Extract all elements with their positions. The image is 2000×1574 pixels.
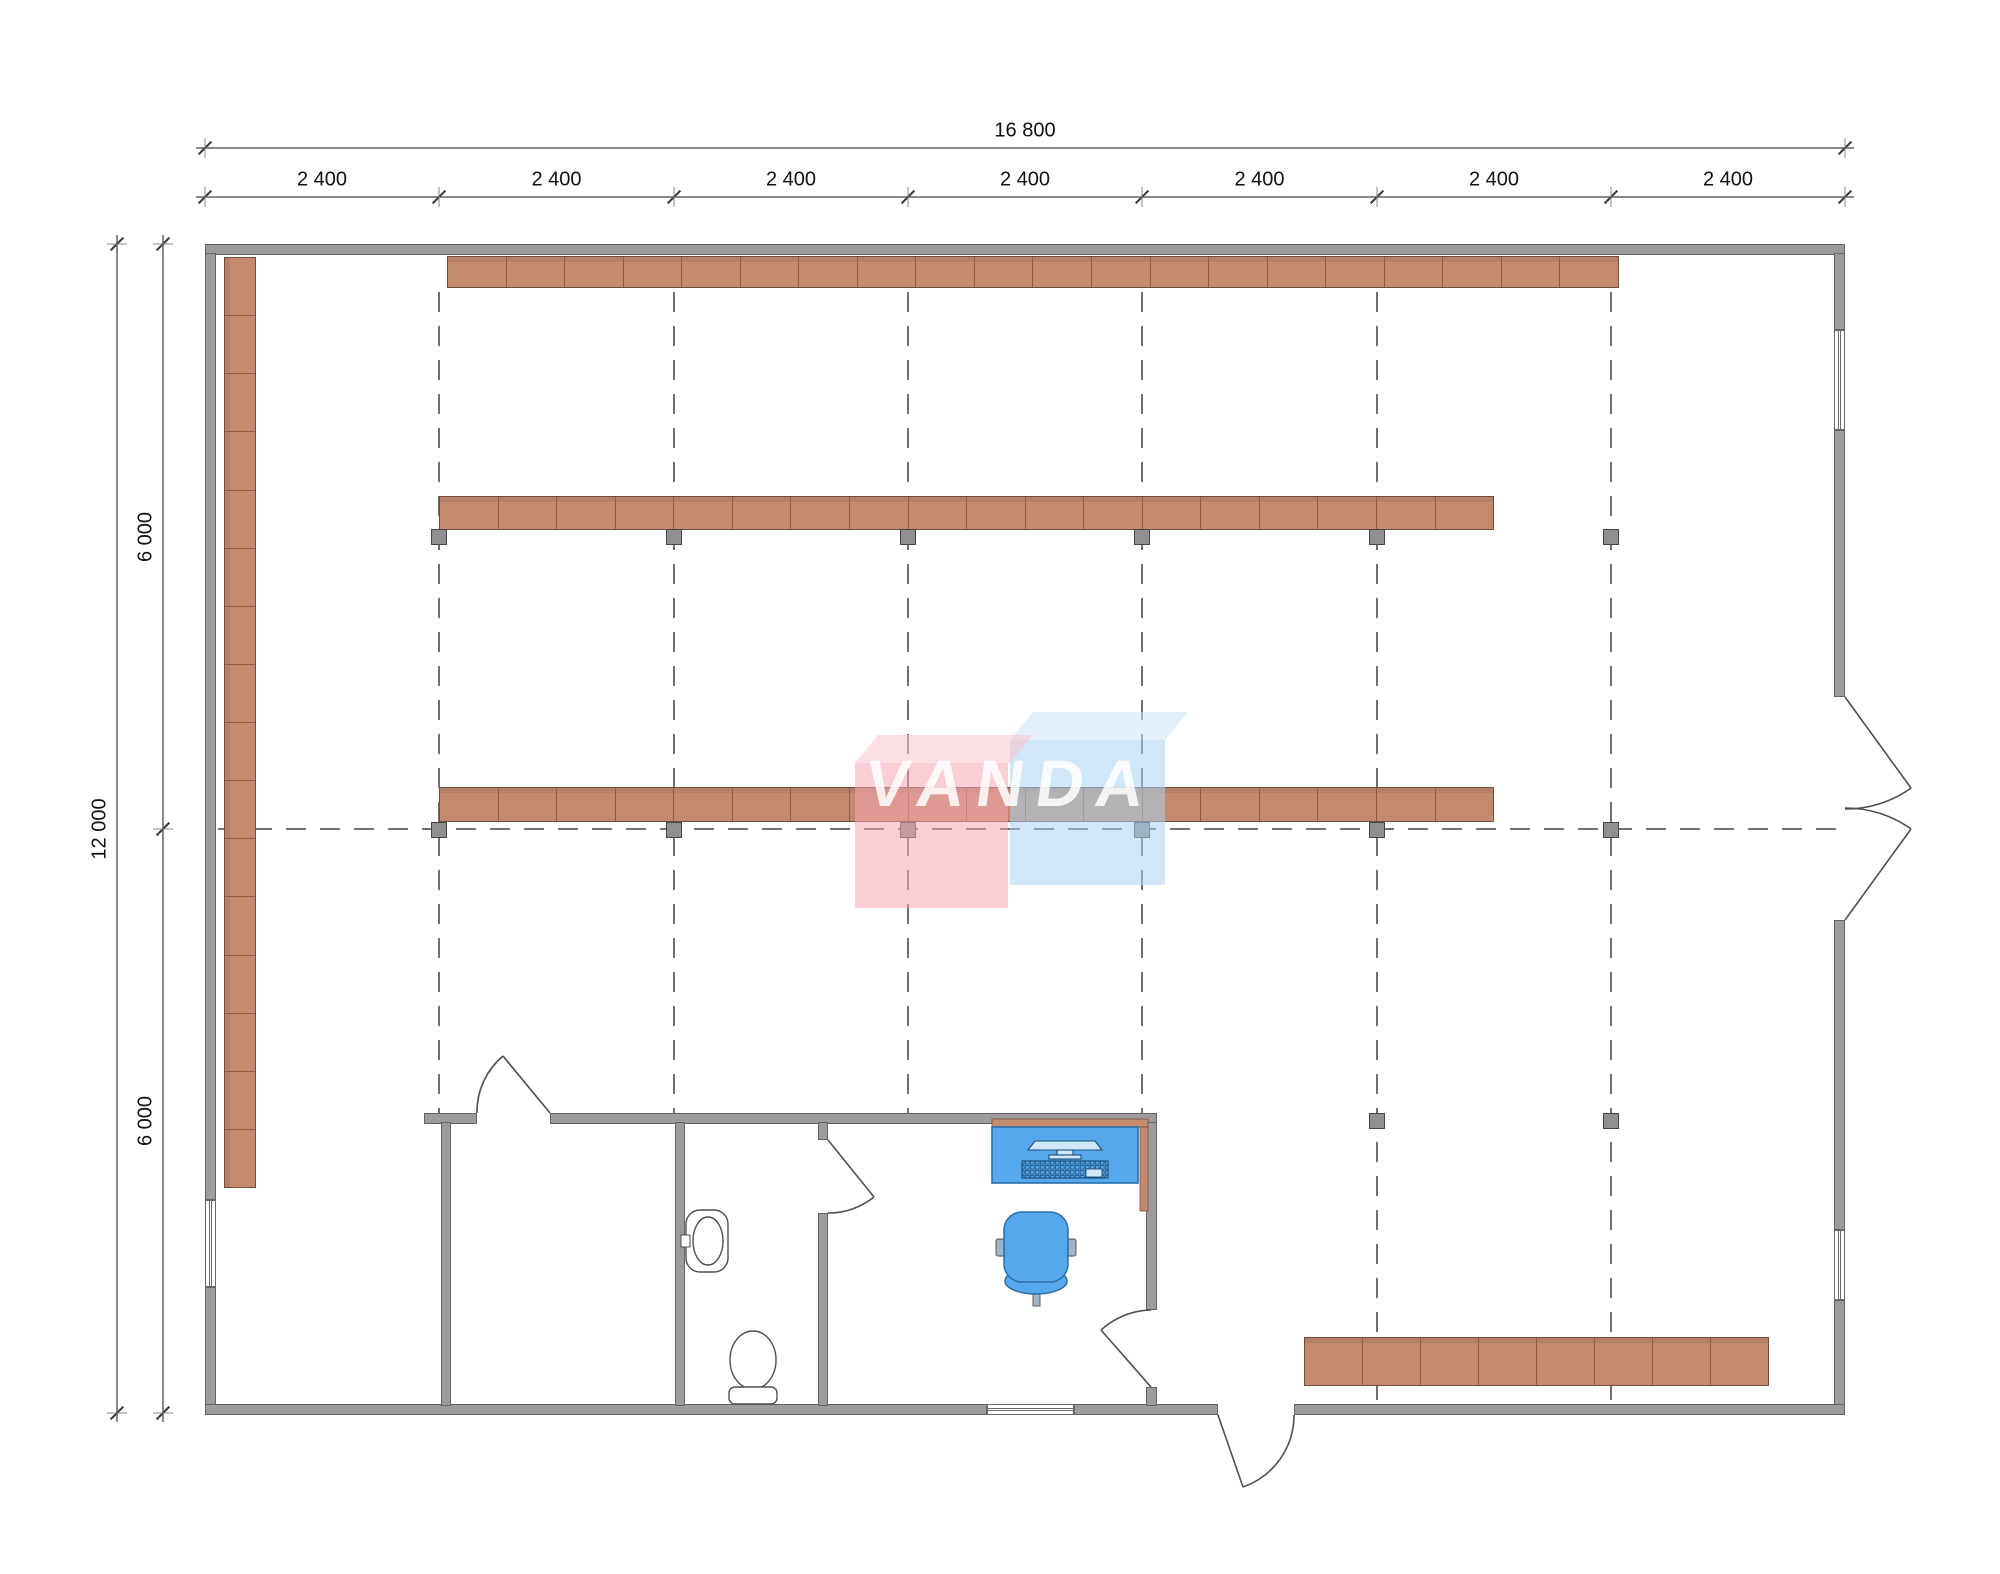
dimension-layer: 16 8002 4002 4002 4002 4002 4002 4002 40… (0, 0, 2000, 1574)
dimension-line-top-total (196, 147, 1854, 149)
dim-extension (153, 1413, 173, 1414)
dimension-label-top-total: 16 800 (994, 120, 1055, 143)
dim-extension (205, 187, 206, 207)
dim-extension (908, 187, 909, 207)
dimension-label-bay: 2 400 (1469, 169, 1519, 192)
dimension-label-left-total: 12 000 (89, 798, 112, 859)
dim-extension (153, 829, 173, 830)
dim-extension (1142, 187, 1143, 207)
dimension-label-half: 6 000 (135, 1096, 158, 1146)
dim-extension (205, 138, 206, 158)
floor-plan: VANDA 16 8002 4002 4002 4002 4002 4002 4… (0, 0, 2000, 1574)
dimension-line-top-bays (196, 196, 1854, 198)
dimension-label-bay: 2 400 (1234, 169, 1284, 192)
dim-extension (1377, 187, 1378, 207)
dim-extension (1845, 138, 1846, 158)
dim-extension (1845, 187, 1846, 207)
dim-extension (1611, 187, 1612, 207)
dim-extension (439, 187, 440, 207)
dimension-line-left-total (116, 235, 118, 1422)
dimension-label-bay: 2 400 (297, 169, 347, 192)
dim-extension (153, 244, 173, 245)
dim-extension (674, 187, 675, 207)
dim-extension (107, 244, 127, 245)
dimension-label-half: 6 000 (135, 511, 158, 561)
dimension-label-bay: 2 400 (1703, 169, 1753, 192)
dim-extension (107, 1413, 127, 1414)
dimension-label-bay: 2 400 (531, 169, 581, 192)
dimension-label-bay: 2 400 (1000, 169, 1050, 192)
dimension-label-bay: 2 400 (766, 169, 816, 192)
